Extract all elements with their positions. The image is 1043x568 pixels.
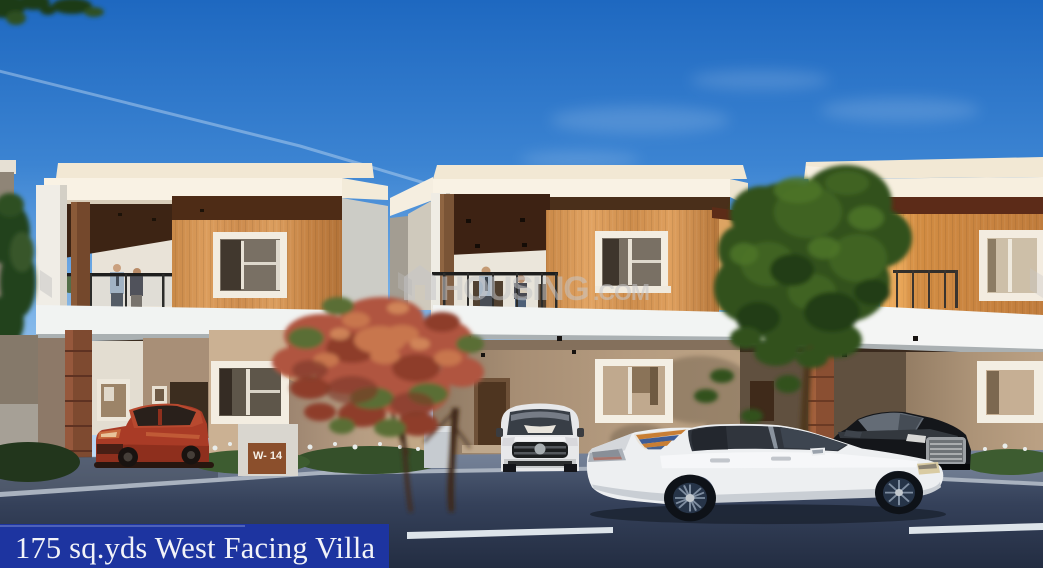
svg-text:W- 14: W- 14: [253, 450, 283, 462]
svg-text:.COM: .COM: [593, 279, 649, 305]
svg-text:HOUSING: HOUSING: [440, 270, 588, 308]
svg-text:175 sq.yds West Facing Villa: 175 sq.yds West Facing Villa: [15, 531, 376, 565]
